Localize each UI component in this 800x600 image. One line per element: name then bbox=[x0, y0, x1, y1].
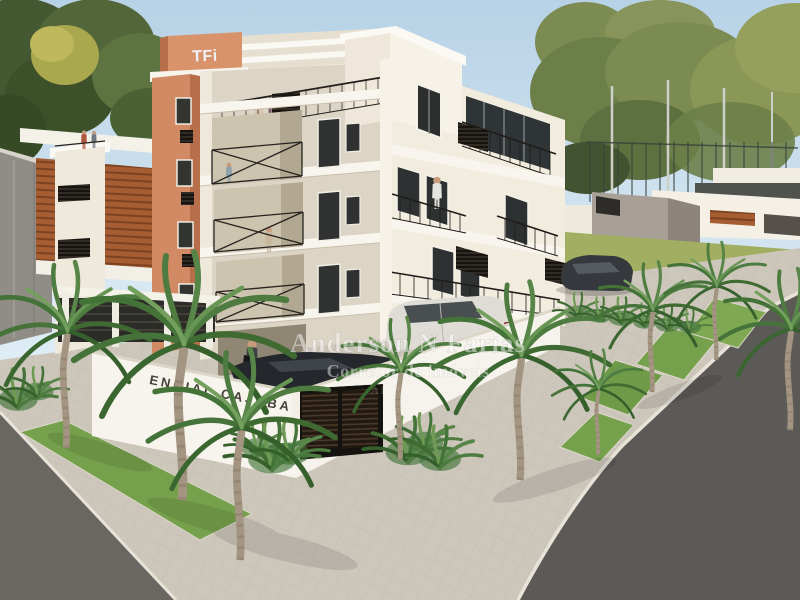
ac-louver bbox=[58, 238, 90, 259]
glass-door bbox=[397, 166, 420, 218]
watermark-line3: API Challe 6 bbox=[371, 383, 446, 397]
glass-door bbox=[318, 118, 340, 168]
render-canvas: TFi bbox=[0, 0, 800, 600]
ac-louver bbox=[58, 184, 90, 202]
architectural-render: TFi bbox=[0, 0, 800, 600]
glass-door bbox=[318, 264, 340, 314]
tfi-logo: TFi bbox=[192, 48, 218, 66]
window bbox=[346, 196, 360, 225]
corner-pillar bbox=[380, 58, 392, 342]
window bbox=[346, 123, 360, 152]
watermark-line2: Corretor de imóveis bbox=[327, 361, 490, 381]
glass-door bbox=[432, 246, 454, 296]
glass-door bbox=[318, 191, 340, 241]
watermark-line1: Anderson N Farias bbox=[290, 328, 526, 358]
window bbox=[346, 269, 360, 298]
